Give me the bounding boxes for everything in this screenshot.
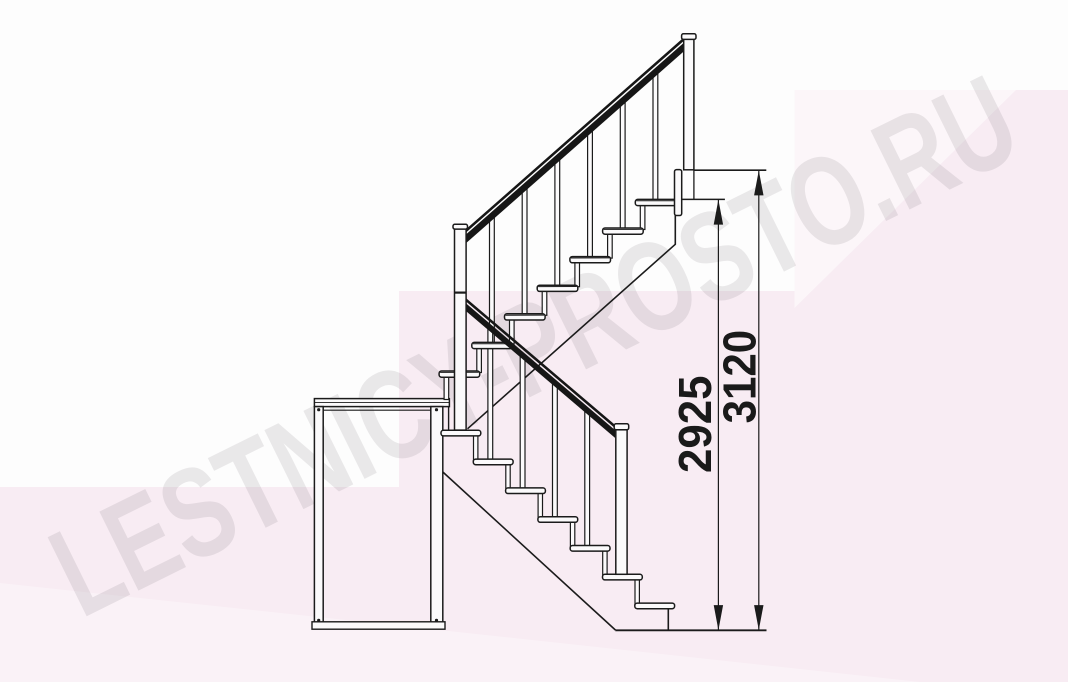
svg-text:3120: 3120 xyxy=(714,330,766,424)
